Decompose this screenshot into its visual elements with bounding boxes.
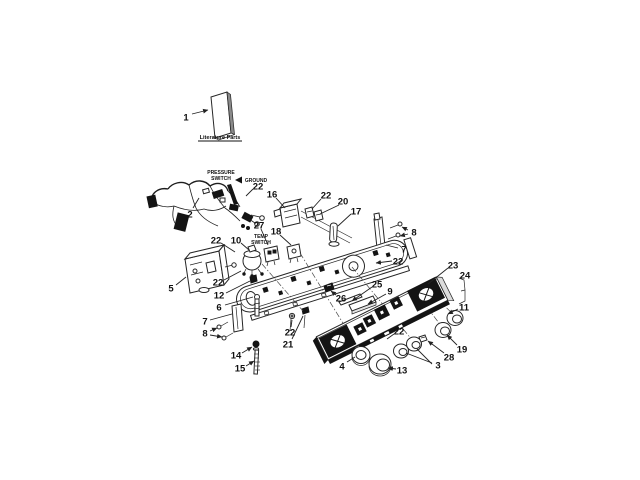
callout-3: 3 [435, 361, 440, 372]
callout-22: 22 [211, 236, 222, 247]
callout-7: 7 [202, 317, 207, 328]
callout-20: 20 [338, 197, 349, 208]
callout-10: 10 [231, 236, 242, 247]
callout-1: 1 [183, 113, 189, 124]
part-3-knob-b [407, 337, 422, 351]
callout-22: 22 [321, 191, 332, 202]
callout-14: 14 [231, 351, 242, 362]
part-2-wiring-harness [147, 177, 264, 232]
part-4-ring [352, 347, 370, 366]
callout-22: 22 [213, 278, 224, 289]
leader-line-7 [210, 314, 232, 320]
diagram-canvas: Literature Parts [0, 0, 640, 480]
leader-line-8 [210, 335, 222, 337]
callout-22: 22 [253, 182, 264, 193]
callout-21: 21 [283, 340, 294, 351]
leader-line-14 [242, 347, 252, 353]
callout-22: 22 [285, 328, 296, 339]
part-19-knob [435, 323, 451, 338]
callout-6: 6 [216, 303, 221, 314]
part-5-timer [185, 245, 236, 293]
exploded-parts-diagram: Literature Parts [0, 0, 640, 480]
part-7-bracket-left [232, 304, 243, 332]
literature-parts-label: Literature Parts [200, 135, 241, 141]
part-17-post [329, 223, 339, 246]
part-14-15-bolt [253, 341, 260, 374]
part-18-switch [287, 244, 301, 263]
clip-20 [314, 210, 323, 221]
leader-line-20 [320, 205, 339, 214]
part-3-knob-a [394, 344, 409, 358]
part-12-clip [250, 275, 257, 283]
callout-23: 23 [448, 261, 459, 272]
part-6-pin [254, 295, 260, 317]
callout-12: 12 [214, 291, 225, 302]
part-28-clip [419, 335, 427, 342]
callout-16: 16 [267, 190, 278, 201]
ground-arrow-icon [235, 177, 242, 184]
leader-line-8 [210, 328, 217, 331]
leader-line-17 [338, 214, 351, 226]
leader-line-18 [280, 235, 291, 245]
callout-18: 18 [271, 227, 282, 238]
callout-22: 22 [393, 257, 404, 268]
leader-line-8 [402, 227, 408, 230]
leader-line-28 [428, 341, 444, 353]
part-1-literature-book: Literature Parts [198, 92, 242, 141]
leader-line-22 [312, 199, 321, 209]
leader-line-19 [447, 335, 457, 345]
part-10-temp-switch-rotary [243, 245, 263, 277]
part-24-bracket [459, 278, 465, 304]
part-27-switch [264, 246, 279, 266]
callout-22: 22 [394, 327, 405, 338]
pressure-switch-arrow [227, 184, 238, 205]
screws-8-left [217, 322, 233, 340]
callout-17: 17 [351, 207, 362, 218]
callout-7: 7 [401, 245, 406, 256]
leader-line-5 [176, 277, 186, 285]
callout-27: 27 [254, 221, 265, 232]
callout-9: 9 [387, 287, 392, 298]
callout-5: 5 [168, 284, 174, 295]
leader-line-8 [400, 234, 408, 236]
leader-line-1 [192, 110, 208, 114]
part-13-knob [369, 354, 391, 376]
pressure-switch-label: PRESSURESWITCH [207, 170, 235, 182]
callout-26: 26 [336, 294, 347, 305]
callout-8: 8 [202, 329, 207, 340]
callout-8: 8 [411, 228, 416, 239]
callout-25: 25 [372, 280, 383, 291]
callout-13: 13 [397, 366, 408, 377]
callout-4: 4 [339, 362, 345, 373]
screws-8-right [388, 222, 402, 239]
callout-28: 28 [444, 353, 455, 364]
leader-line-3 [406, 353, 432, 363]
leader-line-10 [241, 243, 249, 250]
leader-line-3 [417, 349, 432, 364]
temp-switch-label: TEMPSWITCH [251, 234, 271, 246]
callout-11: 11 [459, 303, 470, 314]
callout-24: 24 [460, 271, 471, 282]
leader-line-15 [246, 361, 254, 366]
callout-19: 19 [457, 345, 468, 356]
callout-2: 2 [187, 210, 192, 221]
callout-15: 15 [235, 364, 246, 375]
